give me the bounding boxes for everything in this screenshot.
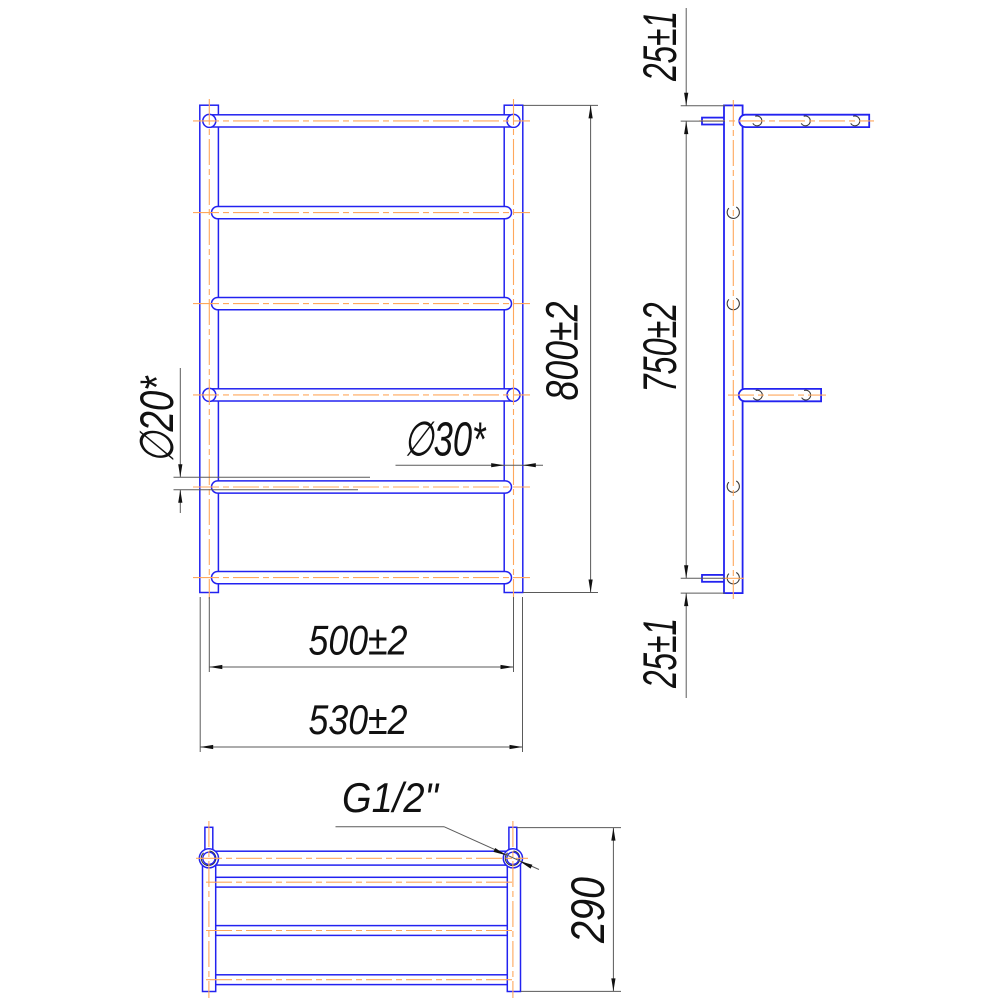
svg-text:800±2: 800±2 (537, 302, 588, 401)
svg-text:25±1: 25±1 (633, 11, 686, 82)
svg-text:∅20*: ∅20* (130, 375, 183, 463)
svg-text:G1/2": G1/2" (342, 774, 440, 821)
svg-text:∅30*: ∅30* (404, 414, 487, 467)
svg-text:750±2: 750±2 (633, 303, 686, 393)
svg-text:290: 290 (561, 877, 614, 944)
svg-text:500±2: 500±2 (309, 617, 408, 664)
svg-text:25±1: 25±1 (633, 618, 686, 689)
svg-text:530±2: 530±2 (309, 696, 408, 743)
